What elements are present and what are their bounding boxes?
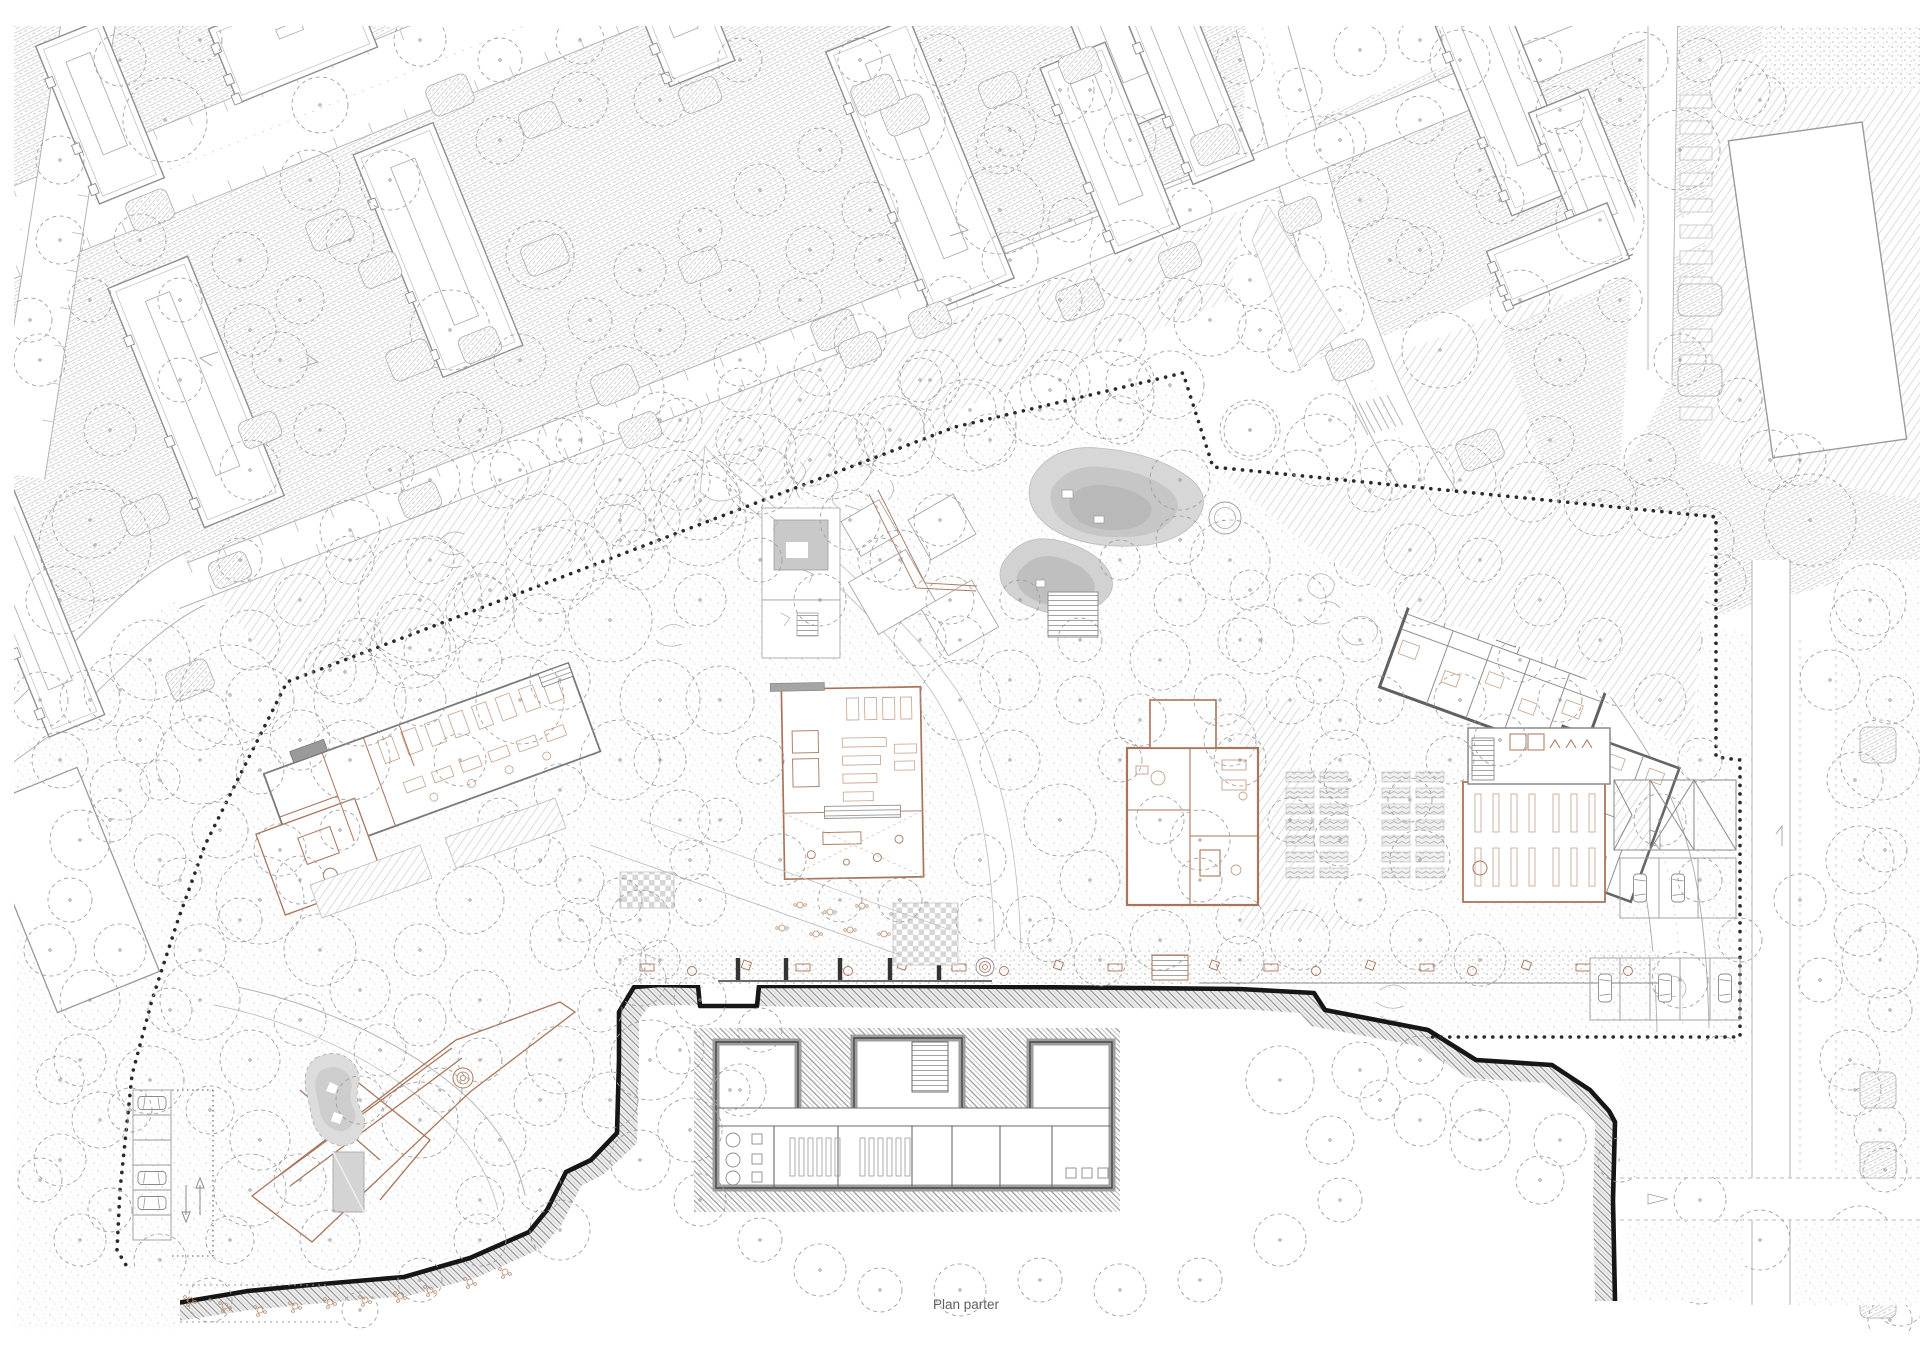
- svg-text:Plan parter: Plan parter: [933, 1297, 1000, 1312]
